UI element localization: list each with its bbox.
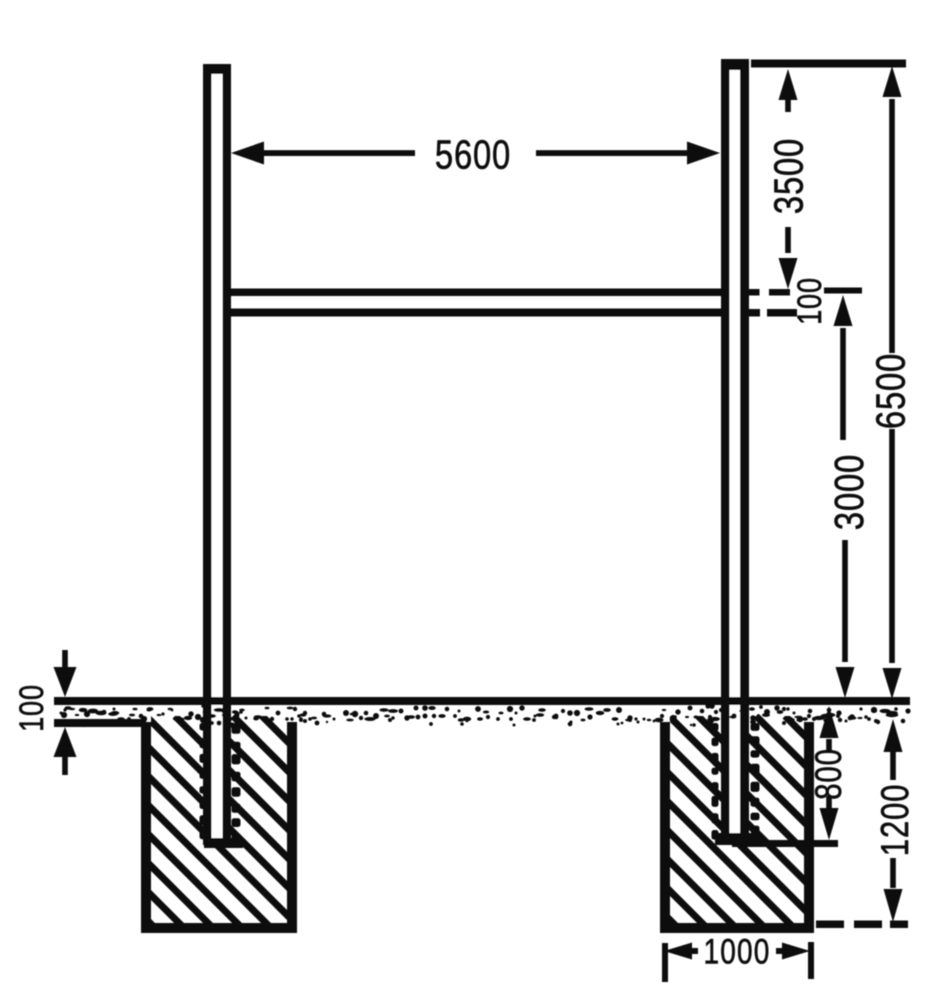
svg-text:1000: 1000 — [703, 931, 770, 971]
svg-text:1200: 1200 — [874, 784, 917, 857]
svg-text:100: 100 — [790, 277, 829, 325]
svg-text:800: 800 — [809, 748, 850, 800]
svg-text:3000: 3000 — [825, 454, 871, 530]
svg-text:3500: 3500 — [765, 138, 811, 214]
svg-text:5600: 5600 — [435, 131, 511, 177]
svg-text:100: 100 — [12, 684, 51, 732]
svg-text:6500: 6500 — [867, 353, 913, 429]
